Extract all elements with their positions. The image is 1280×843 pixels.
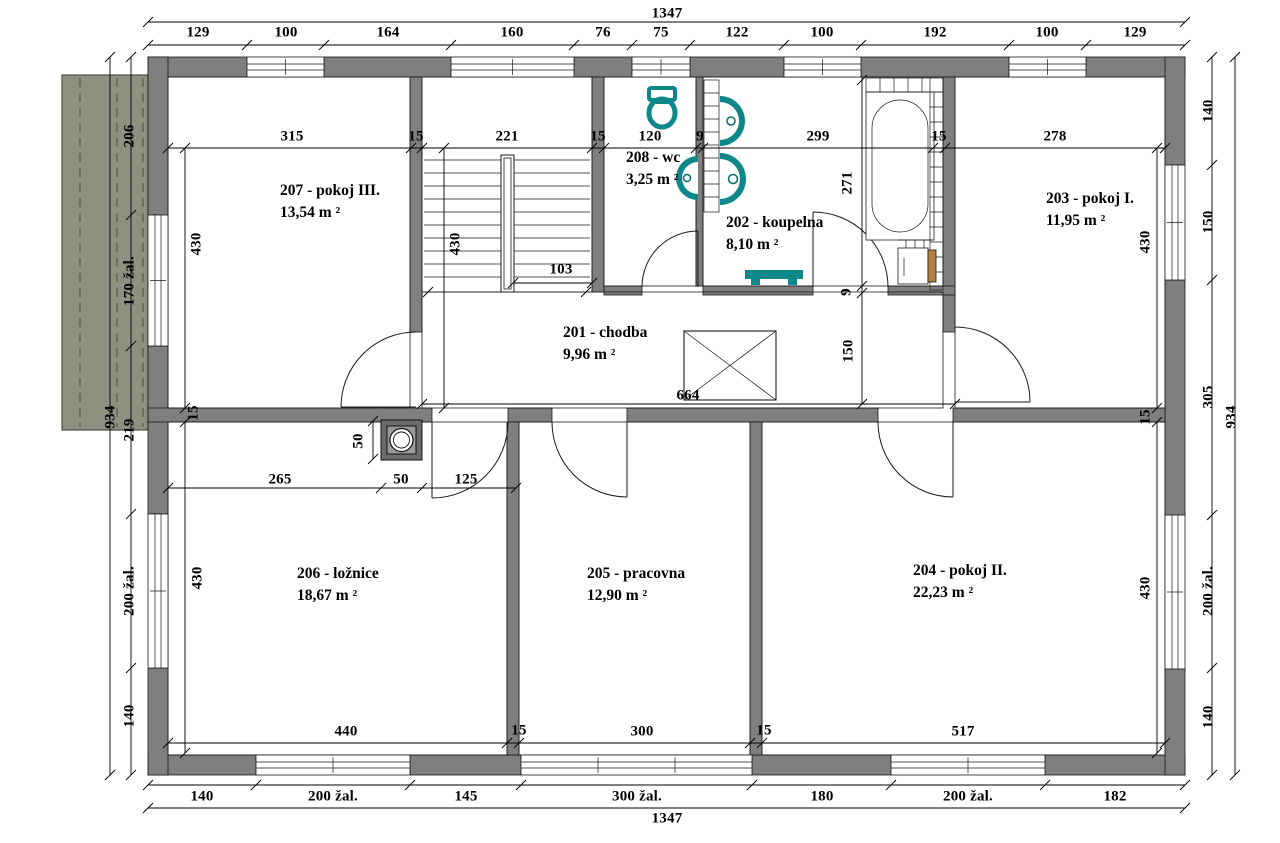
door-207	[341, 332, 416, 407]
stairs	[424, 155, 590, 292]
bathroom-washbasin	[720, 96, 745, 146]
window	[1165, 515, 1185, 669]
window	[451, 57, 574, 77]
bathroom-bench	[745, 270, 803, 285]
window	[247, 57, 324, 77]
window	[1009, 57, 1086, 77]
wc-toilet	[649, 88, 675, 127]
chimney	[381, 420, 422, 460]
floor-plan: 1347 1347 934 934 1291001641607675122100…	[0, 0, 1280, 843]
door-204	[878, 422, 953, 497]
door-205	[552, 422, 627, 497]
door-wc	[642, 231, 698, 287]
door-206	[432, 422, 508, 498]
door-203	[955, 327, 1030, 402]
attic-hatch-symbol	[684, 331, 776, 400]
bathroom-toilet	[720, 153, 746, 205]
wc-washbasin	[676, 156, 698, 200]
window	[1165, 165, 1185, 280]
bathroom-wall-tiles	[704, 80, 719, 212]
window	[891, 755, 1045, 775]
window	[632, 57, 690, 77]
window	[521, 755, 752, 775]
interior-walls	[148, 77, 1165, 755]
window	[256, 755, 410, 775]
window	[148, 514, 168, 668]
floor-plan-drawing	[0, 0, 1280, 843]
balcony-door-window	[148, 215, 168, 346]
window	[784, 57, 861, 77]
balcony	[62, 75, 148, 430]
